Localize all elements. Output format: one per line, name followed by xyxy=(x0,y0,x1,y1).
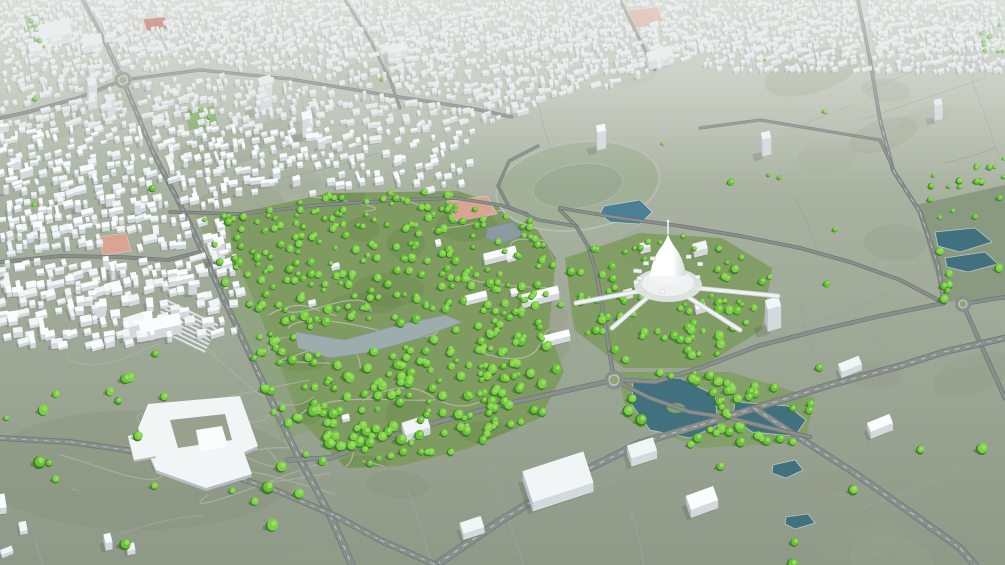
city-3d-render xyxy=(0,0,1005,565)
city-scene-svg xyxy=(0,0,1005,565)
roundabout xyxy=(609,375,619,385)
stadium-court xyxy=(99,233,131,255)
roundabout xyxy=(959,300,967,308)
haze-overlay xyxy=(0,0,1005,185)
